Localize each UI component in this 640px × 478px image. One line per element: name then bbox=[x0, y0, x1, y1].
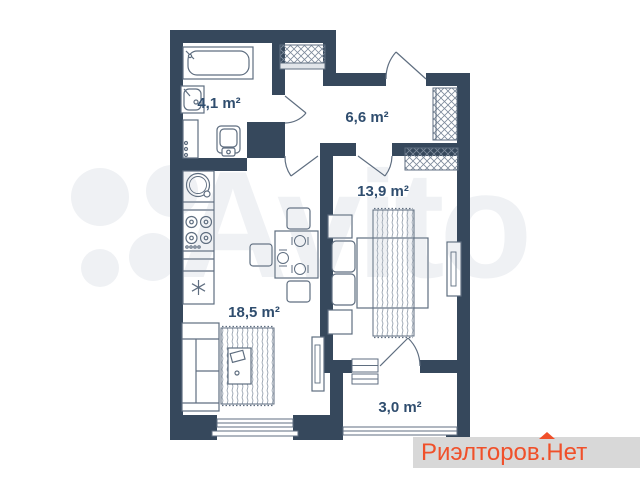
window-sill bbox=[212, 431, 298, 436]
kitchen bbox=[183, 171, 214, 304]
burner-dot bbox=[204, 220, 208, 224]
pillow bbox=[332, 274, 355, 305]
bedroom-wardrobe bbox=[405, 148, 458, 170]
plate bbox=[278, 253, 289, 264]
roof-icon bbox=[539, 432, 555, 439]
wall-segment bbox=[247, 122, 285, 158]
knob bbox=[186, 246, 188, 248]
plate bbox=[295, 264, 306, 275]
bathtub-drain bbox=[188, 54, 191, 57]
wall-segment bbox=[330, 373, 343, 433]
burner-dot bbox=[204, 236, 208, 240]
kitchen-tap bbox=[204, 191, 210, 197]
radiator-fin bbox=[315, 345, 320, 383]
knob bbox=[198, 246, 200, 248]
wall-segment bbox=[333, 143, 356, 156]
room-label-living-kitchen: 18,5 m² bbox=[228, 304, 280, 321]
sink-inner bbox=[190, 177, 207, 194]
wall-segment bbox=[183, 158, 247, 171]
wall-segment bbox=[333, 360, 352, 373]
knob bbox=[194, 246, 196, 248]
toilet-button bbox=[227, 150, 231, 154]
sofa bbox=[182, 323, 219, 411]
room-label-bedroom: 13,9 m² bbox=[357, 183, 409, 200]
bed-blanket bbox=[373, 210, 414, 336]
brand-text: Риэлторов.Нет bbox=[421, 439, 587, 467]
rail-dot bbox=[185, 148, 188, 151]
floor-plan-image: 4,1 m² 6,6 m² 13,9 m² 18,5 m² 3,0 m² Avi… bbox=[0, 0, 640, 478]
brand-band: Риэлторов.Нет bbox=[413, 437, 640, 468]
room-label-hallway: 6,6 m² bbox=[345, 109, 388, 126]
decor-dot bbox=[235, 371, 239, 375]
pillow bbox=[332, 241, 355, 272]
wall-segment bbox=[170, 30, 336, 43]
bathtub-basin bbox=[188, 51, 249, 75]
burner-dot bbox=[190, 236, 194, 240]
radiator-fin bbox=[451, 252, 456, 286]
rail-dot bbox=[185, 142, 188, 145]
wall-segment bbox=[336, 73, 386, 86]
chair bbox=[287, 208, 310, 229]
chair bbox=[287, 281, 310, 302]
knob bbox=[190, 246, 192, 248]
room-label-balcony: 3,0 m² bbox=[378, 399, 421, 416]
closet-shelf bbox=[280, 63, 325, 69]
burner-dot bbox=[190, 220, 194, 224]
rail-dot bbox=[185, 154, 188, 157]
wall-segment bbox=[420, 360, 457, 373]
towel-rail bbox=[183, 120, 198, 158]
entry-wardrobe bbox=[433, 88, 457, 140]
chair bbox=[250, 244, 272, 266]
plate bbox=[295, 236, 306, 247]
nightstand bbox=[328, 310, 352, 334]
room-label-bathroom: 4,1 m² bbox=[197, 95, 240, 112]
toilet-bowl bbox=[220, 129, 237, 147]
nightstand bbox=[328, 215, 352, 238]
hallway-closet bbox=[280, 45, 325, 63]
floor-plan: 4,1 m² 6,6 m² 13,9 m² 18,5 m² 3,0 m² bbox=[0, 0, 640, 478]
